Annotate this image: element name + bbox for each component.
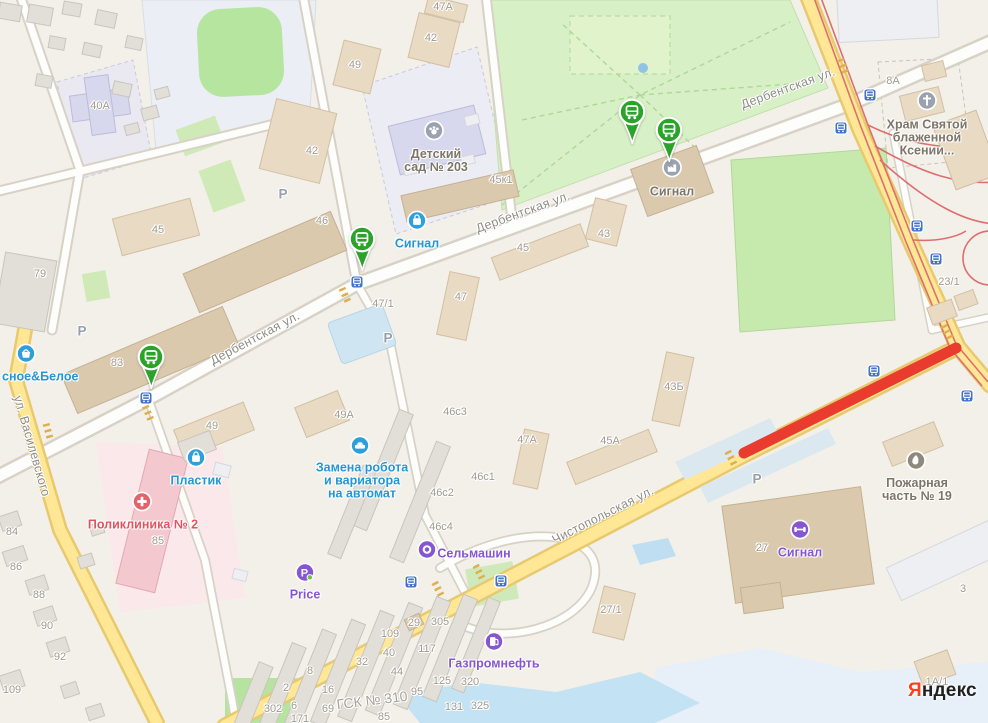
building [740,582,783,613]
building [60,681,79,698]
car-icon [350,435,371,461]
building [125,35,143,50]
yandex-logo-ya: Я [908,680,922,701]
transit-stop-icon[interactable] [863,88,877,102]
building [0,511,22,531]
poi-label: Сельмашин [437,548,510,561]
poi-label: Ксении... [887,145,968,158]
transit-stop-icon[interactable] [834,121,848,135]
building [2,545,28,566]
poi-label: Газпромнефть [448,658,539,671]
pprice-icon: P [295,562,316,588]
poi-label: сное&Белое [2,371,78,384]
building [27,4,54,26]
building [567,429,658,484]
building [652,352,694,426]
building [593,586,636,640]
transit-stop-icon[interactable] [910,219,924,233]
bus-stop-pin[interactable] [345,224,379,274]
transit-stop-icon[interactable] [139,391,153,405]
building [954,290,978,311]
building [82,42,102,57]
building [0,2,22,22]
cross-icon [917,90,938,116]
poi-label: Сигнал [395,238,439,251]
dumbbell-icon [790,519,811,545]
poi-label: на автомат [316,488,408,501]
building [886,519,988,600]
poi-label: Поликлиника № 2 [88,519,198,532]
map-viewport[interactable]: 40А424247А494546798345к147/14745438А23/1… [0,0,988,723]
building [112,198,199,255]
fountain [638,63,648,73]
building [46,637,70,657]
poi-label: Сигнал [778,547,822,560]
paw-icon [424,120,445,146]
yandex-logo-rest: ндекс [922,680,977,701]
transit-stop-icon[interactable] [350,275,364,289]
building [33,606,57,626]
building [513,429,549,489]
poi-label: Пластик [171,475,222,488]
building [85,703,104,720]
poi-label: Сигнал [650,186,694,199]
transit-stop-icon[interactable] [929,252,943,266]
transit-stop-icon[interactable] [867,364,881,378]
bus-stop-pin[interactable] [615,97,649,147]
building [295,391,350,438]
bus-stop-pin[interactable] [134,342,168,392]
fuel-icon [484,631,505,657]
building [837,0,939,43]
building [62,1,82,17]
ring-icon [417,539,438,565]
poi-label: сад № 203 [404,161,468,174]
basket-icon [16,343,37,369]
yandex-logo[interactable]: Яндекс [908,680,977,702]
building [25,575,49,595]
medcross-icon [132,491,153,517]
transit-stop-icon[interactable] [494,574,508,588]
bag-icon [186,447,207,473]
bus-stop-pin[interactable] [652,115,686,165]
poi-label: часть № 19 [882,490,952,503]
bag-icon [407,210,428,236]
flame-icon [906,450,927,476]
building [0,670,25,693]
building [95,10,118,29]
transit-stop-icon[interactable] [960,389,974,403]
building [48,36,66,51]
poi-label: Price [290,589,321,602]
transit-stop-icon[interactable] [404,575,418,589]
building [35,74,53,89]
building [437,272,480,341]
